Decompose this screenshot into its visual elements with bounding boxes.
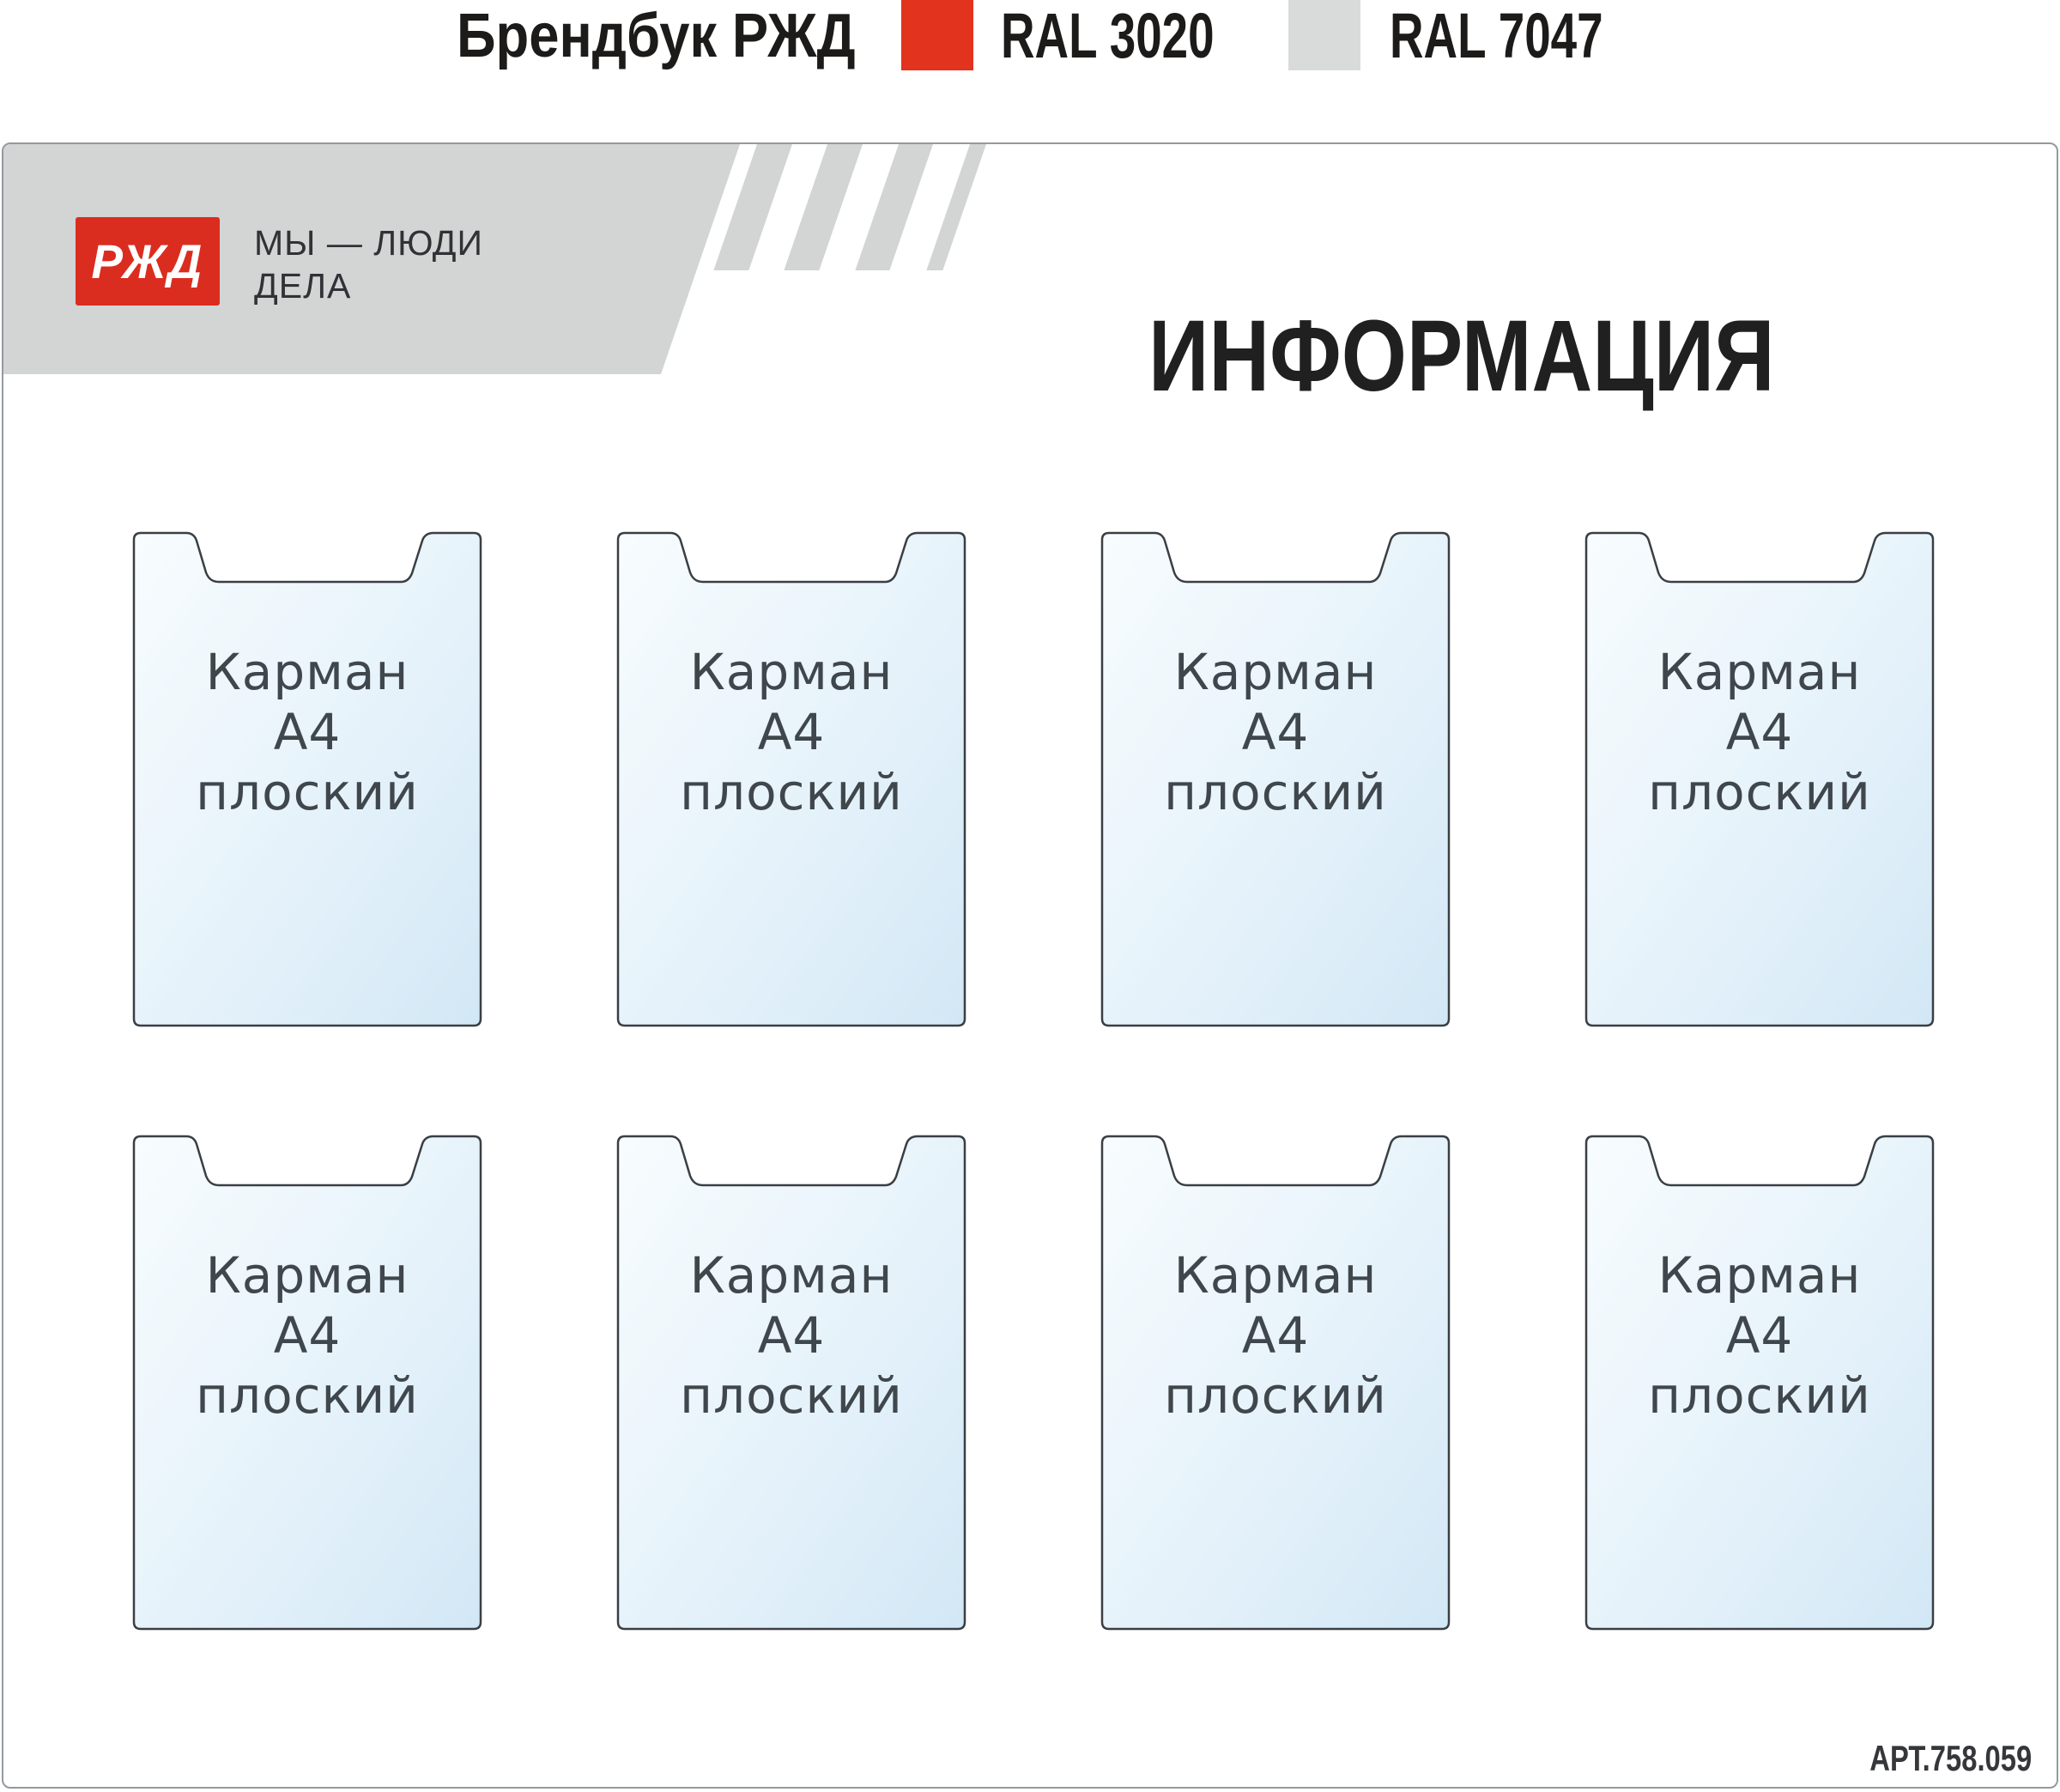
article-number: АРТ.758.059 [1869,1737,2032,1780]
pocket-label: Карман А4 плоский [1100,1245,1451,1426]
pocket-label-line2: А4 [1100,1305,1451,1365]
pocket-label: Карман А4 плоский [131,1245,483,1426]
ral-3020-label: RAL 3020 [1001,2,1215,70]
brandbook-label: Брендбук РЖД [457,2,856,70]
pocket-label-line2: А4 [131,702,483,762]
pocket-label-line2: А4 [615,1305,967,1365]
pocket-label-line3: плоский [615,762,967,822]
tagline-line1: МЫ — ЛЮДИ [254,221,483,264]
board-title: ИНФОРМАЦИЯ [1148,306,1718,407]
pocket-label-line3: плоский [1584,762,1936,822]
info-board: РЖД МЫ — ЛЮДИ ДЕЛА ИНФОРМАЦИЯ Карман А4 … [2,142,2058,1789]
pocket-label: Карман А4 плоский [615,642,967,822]
pocket-1-1: Карман А4 плоский [131,531,483,1027]
pocket-label-line2: А4 [615,702,967,762]
tagline-line2: ДЕЛА [254,264,483,307]
banner-stripe-2 [784,144,863,270]
banner-stripe-4 [926,144,986,270]
pocket-label-line2: А4 [1100,702,1451,762]
pocket-label-line1: Карман [1100,642,1451,702]
pocket-1-2: Карман А4 плоский [615,531,967,1027]
pocket-label-line3: плоский [615,1365,967,1426]
pocket-label-line1: Карман [131,1245,483,1305]
pocket-label-line2: А4 [1584,1305,1936,1365]
pocket-2-2: Карман А4 плоский [615,1135,967,1631]
pocket-1-4: Карман А4 плоский [1584,531,1936,1027]
pocket-2-3: Карман А4 плоский [1100,1135,1451,1631]
rzd-logo-mark: РЖД [92,233,204,289]
ral-3020-swatch [901,0,973,70]
pocket-label-line1: Карман [615,1245,967,1305]
pocket-label-line3: плоский [1584,1365,1936,1426]
spec-bar: Брендбук РЖД RAL 3020 RAL 7047 [0,0,2060,142]
pocket-label-line1: Карман [615,642,967,702]
pocket-label-line2: А4 [1584,702,1936,762]
pocket-label-line3: плоский [1100,1365,1451,1426]
pocket-label: Карман А4 плоский [1584,642,1936,822]
pocket-label-line1: Карман [1584,642,1936,702]
pocket-label: Карман А4 плоский [615,1245,967,1426]
tagline: МЫ — ЛЮДИ ДЕЛА [254,221,483,307]
pocket-label: Карман А4 плоский [1584,1245,1936,1426]
banner-stripe-3 [855,144,933,270]
pocket-label: Карман А4 плоский [1100,642,1451,822]
pocket-label-line3: плоский [131,762,483,822]
pocket-2-1: Карман А4 плоский [131,1135,483,1631]
ral-7047-swatch [1288,0,1360,70]
mockup-canvas: Брендбук РЖД RAL 3020 RAL 7047 РЖД МЫ — … [0,0,2060,1792]
ral-7047-label: RAL 7047 [1390,2,1603,70]
pocket-label-line3: плоский [1100,762,1451,822]
pocket-1-3: Карман А4 плоский [1100,531,1451,1027]
pocket-label-line1: Карман [131,642,483,702]
pocket-label-line2: А4 [131,1305,483,1365]
pocket-label-line1: Карман [1100,1245,1451,1305]
pocket-2-4: Карман А4 плоский [1584,1135,1936,1631]
rzd-logo: РЖД [76,217,220,306]
pocket-label: Карман А4 плоский [131,642,483,822]
pocket-label-line1: Карман [1584,1245,1936,1305]
pocket-label-line3: плоский [131,1365,483,1426]
